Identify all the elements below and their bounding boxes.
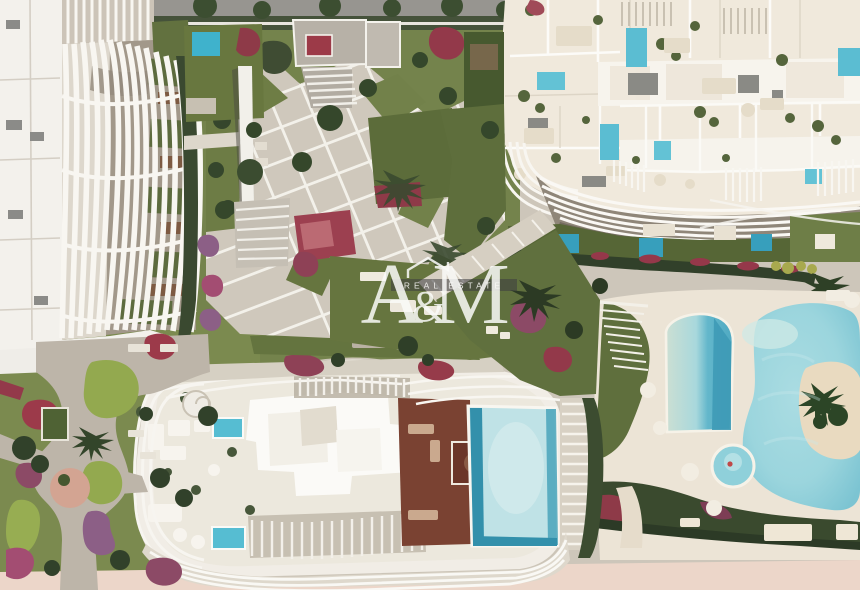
svg-text:M: M — [432, 245, 509, 342]
